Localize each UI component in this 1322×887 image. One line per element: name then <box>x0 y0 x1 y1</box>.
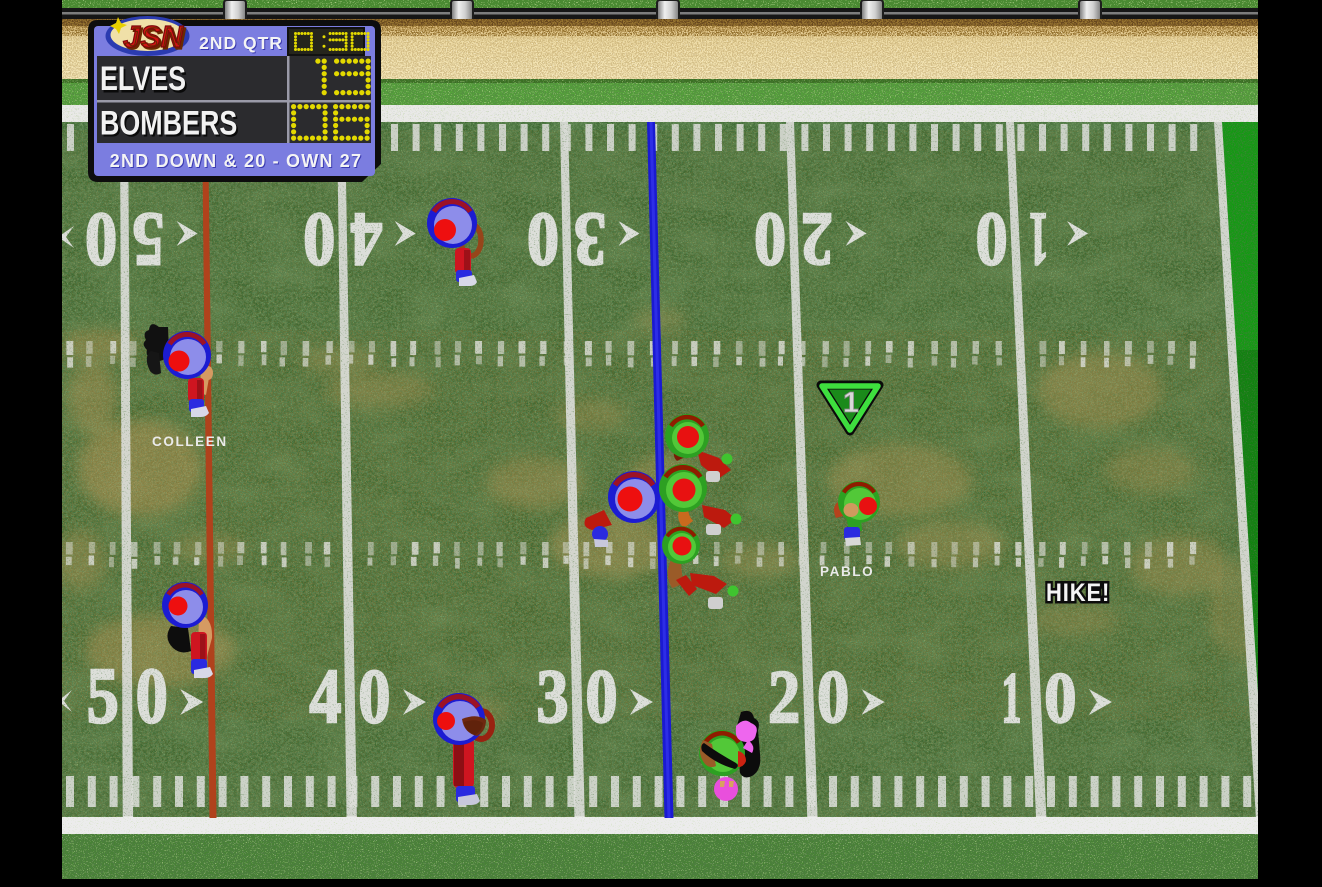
svg-text:COLLEEN: COLLEEN <box>152 434 228 449</box>
svg-text:BOMBERS: BOMBERS <box>100 103 237 142</box>
svg-text:2ND DOWN & 20 - OWN 27: 2ND DOWN & 20 - OWN 27 <box>110 151 362 171</box>
svg-text:2ND QTR: 2ND QTR <box>199 33 283 53</box>
svg-text:PABLO: PABLO <box>820 564 874 579</box>
svg-text:ELVES: ELVES <box>100 59 186 98</box>
svg-text:JSN: JSN <box>123 19 184 54</box>
svg-text:1: 1 <box>843 387 859 419</box>
svg-text:HIKE!: HIKE! <box>1046 579 1110 607</box>
